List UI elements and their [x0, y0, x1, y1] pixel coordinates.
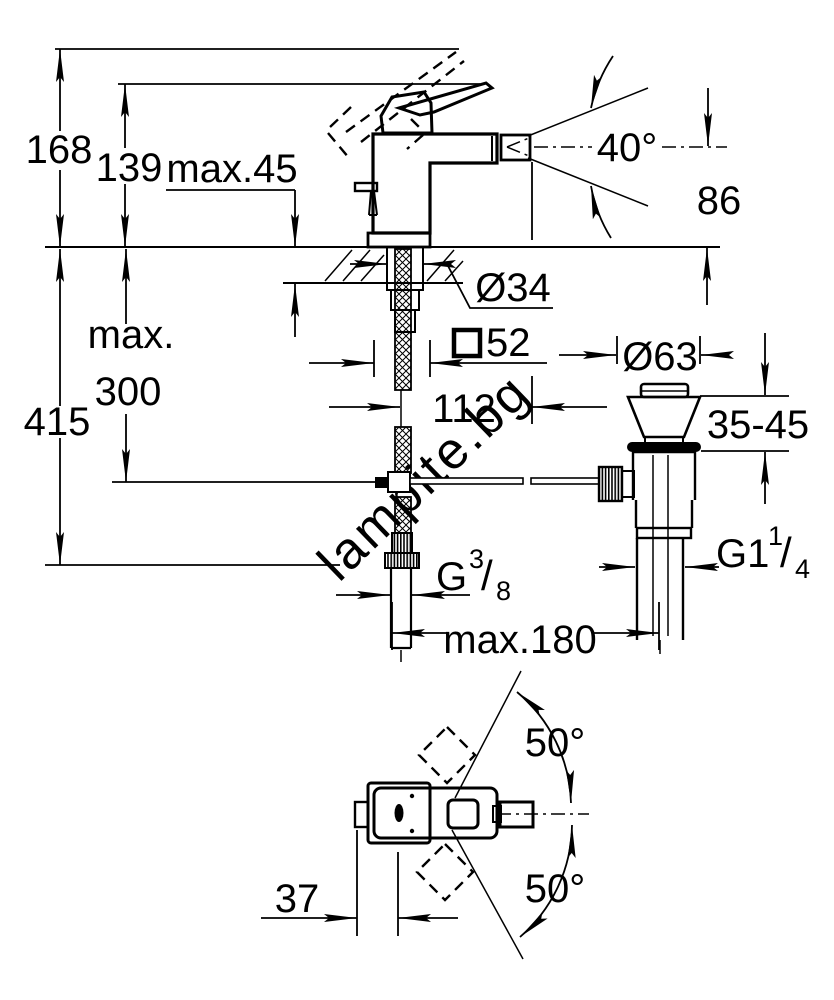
- waste-body-mid: [636, 500, 692, 528]
- plan-screw-dot-bottom: [410, 829, 414, 833]
- supply-hose-middle: [395, 427, 411, 473]
- label-hole-diameter: Ø34: [475, 266, 551, 310]
- waste-groove: [637, 528, 691, 538]
- label-deck-thickness: max.45: [166, 147, 297, 191]
- plan-screw-dot-top: [410, 794, 414, 798]
- waste-tailpiece: [637, 538, 683, 640]
- horizontal-rod-right: [531, 478, 599, 484]
- deck-hatching: [325, 250, 463, 281]
- svg-text:G1: G1: [716, 532, 769, 576]
- label-basin-thickness: 35-45: [707, 403, 809, 447]
- handle-lever: [399, 83, 492, 115]
- label-spout-reach: 112: [432, 387, 496, 431]
- label-swivel-up: 50°: [525, 721, 586, 765]
- svg-text:8: 8: [496, 576, 511, 606]
- label-swivel-down: 50°: [525, 867, 586, 911]
- label-spray-angle: 40°: [597, 126, 658, 170]
- pop-up-waste-assembly: [599, 384, 701, 658]
- supply-hose-lower: [395, 497, 411, 533]
- swivel-ray-upper: [455, 671, 521, 798]
- handle-knuckle: [381, 92, 432, 133]
- rod-knob: [599, 467, 622, 501]
- svg-text:4: 4: [795, 554, 810, 584]
- waste-body-upper: [633, 452, 695, 500]
- label-height-spout: 139: [96, 146, 163, 190]
- waste-inner-bore: [653, 455, 668, 636]
- label-height-total: 168: [26, 128, 93, 172]
- technical-drawing-page: lampite.bg: [0, 0, 834, 1000]
- label-height-below: 415: [24, 400, 91, 444]
- plan-popup-tab: [355, 802, 368, 827]
- label-waste-thread: G1 1 / 4: [716, 521, 810, 584]
- faucet-base-plate: [368, 233, 430, 247]
- label-center-distance: max.180: [443, 618, 596, 662]
- horizontal-rod-left: [410, 478, 523, 484]
- label-depth-max: max.: [88, 313, 175, 357]
- waste-flange: [628, 397, 700, 437]
- plan-cartridge-dot: [395, 804, 404, 822]
- waste-oring: [627, 442, 701, 452]
- svg-text:/: /: [481, 552, 493, 599]
- hose-nut: [385, 553, 419, 568]
- faucet-dimension-drawing: lampite.bg: [0, 0, 834, 1000]
- square-symbol: [454, 330, 480, 356]
- swivel-ray-lower: [452, 830, 523, 959]
- label-supply-thread: G 3 / 8: [436, 544, 511, 606]
- label-body-square: 52: [486, 321, 531, 365]
- label-waste-flange-diameter: Ø63: [622, 335, 698, 379]
- label-rod-offset: 37: [275, 877, 320, 921]
- hose-ferrule: [392, 533, 412, 553]
- svg-text:/: /: [780, 529, 792, 576]
- handle-raised-dashed: [328, 52, 464, 158]
- svg-text:G: G: [436, 555, 467, 599]
- rod-pivot: [375, 477, 388, 488]
- supply-hose-upper: [395, 249, 411, 390]
- label-spout-to-deck: 86: [697, 179, 742, 223]
- label-depth-300: 300: [95, 370, 162, 414]
- supply-tube: [391, 568, 411, 648]
- rod-tee: [388, 472, 410, 492]
- plan-handle-square: [448, 800, 478, 828]
- faucet-body: [373, 134, 497, 233]
